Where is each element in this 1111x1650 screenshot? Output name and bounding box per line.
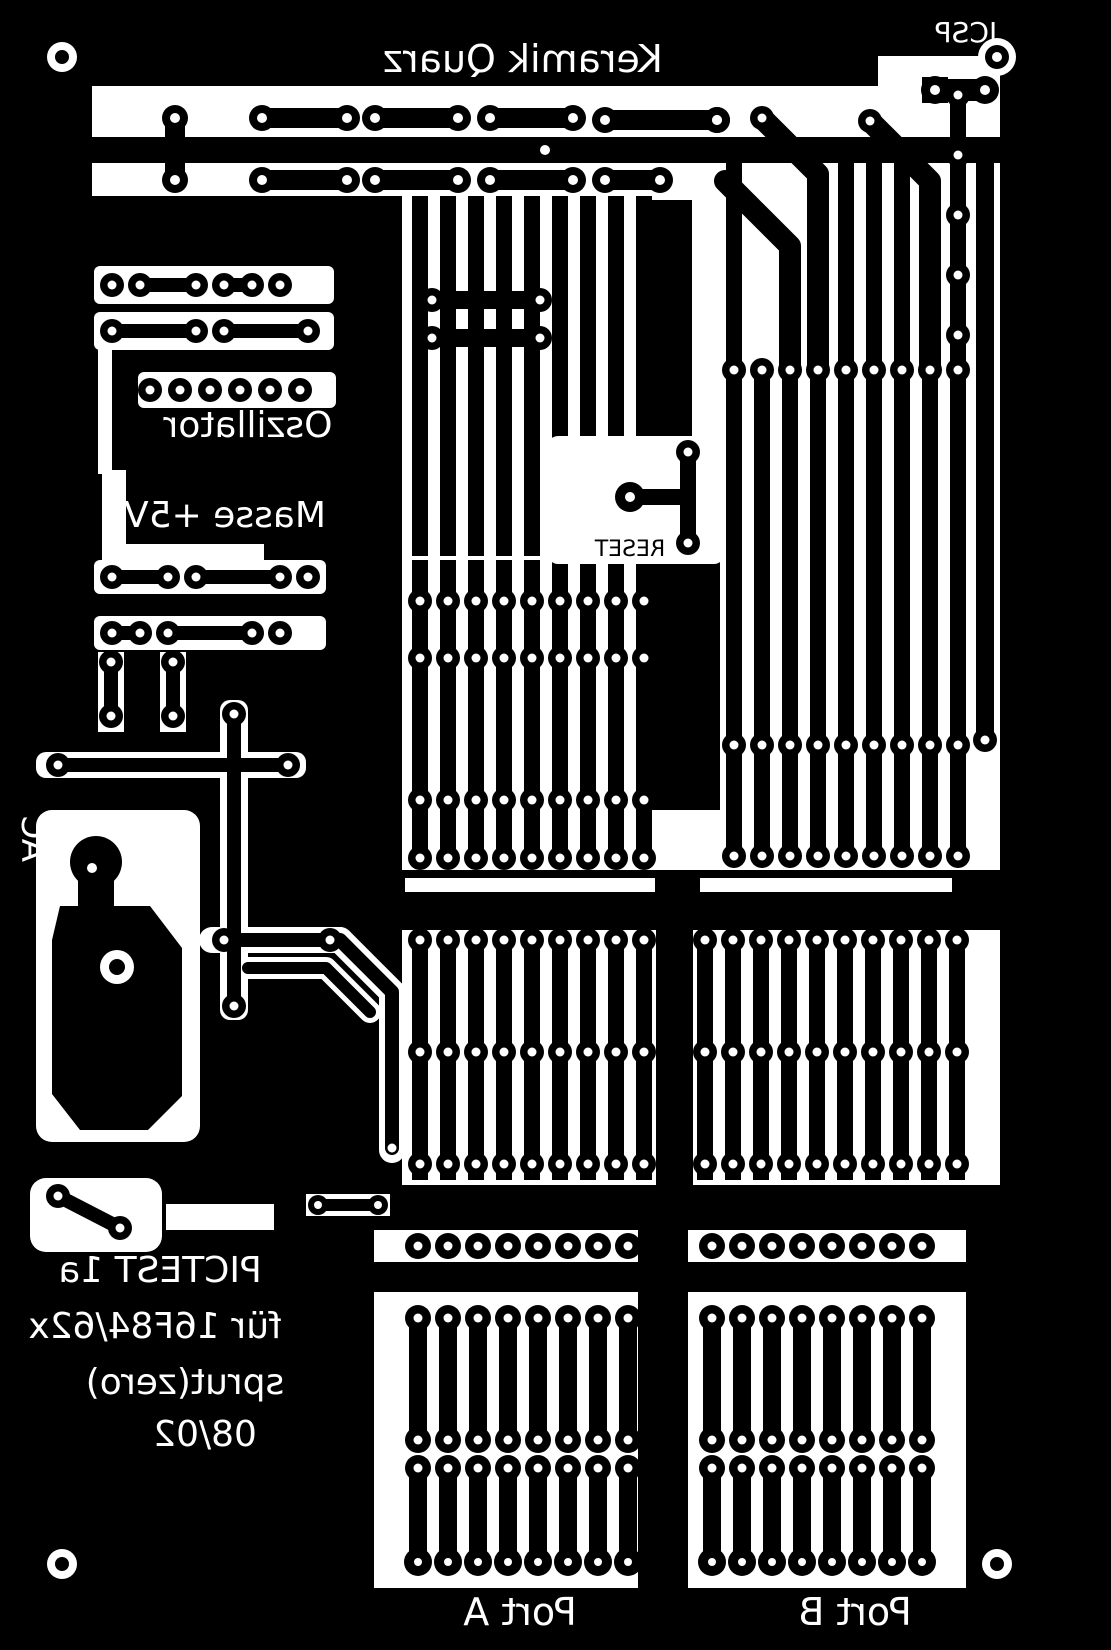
drill-hole <box>954 151 963 160</box>
drill-hole <box>712 115 722 125</box>
drill-hole <box>828 1314 837 1323</box>
drill-hole <box>584 1160 593 1169</box>
drill-hole <box>729 1048 738 1057</box>
drill-hole <box>918 1558 926 1566</box>
copper-pour <box>648 560 720 810</box>
drill-hole <box>841 1160 850 1169</box>
drill-hole <box>594 1558 602 1566</box>
drill-hole <box>444 854 453 863</box>
label-keramik-quarz: Keramik Quarz <box>383 37 663 81</box>
drill-hole <box>444 597 453 606</box>
drill-hole <box>164 573 173 582</box>
port-trace <box>589 1468 607 1562</box>
socket-trace <box>838 365 854 860</box>
label-ac: AC <box>13 816 53 862</box>
copper-pour <box>374 1262 638 1292</box>
drill-hole <box>500 654 509 663</box>
port-trace <box>619 1468 637 1562</box>
label-project-line2: für 16F84/62x <box>28 1306 281 1347</box>
drill-hole <box>918 1464 927 1473</box>
drill-hole <box>785 1048 794 1057</box>
drill-hole <box>116 1224 125 1233</box>
port-trace <box>619 1318 637 1440</box>
drill-hole <box>926 852 935 861</box>
drill-hole <box>556 936 565 945</box>
drill-hole <box>528 936 537 945</box>
drill-hole <box>858 1436 867 1445</box>
drill-hole <box>107 712 116 721</box>
drill-hole <box>564 1464 573 1473</box>
drill-hole <box>640 597 649 606</box>
drill-hole <box>708 1314 717 1323</box>
drill-hole <box>164 629 173 638</box>
drill-hole <box>564 1314 573 1323</box>
drill-hole <box>954 211 963 220</box>
drill-hole <box>786 741 795 750</box>
drill-hole <box>898 366 907 375</box>
drill-hole <box>472 1160 481 1169</box>
drill-hole <box>485 175 495 185</box>
drill-hole <box>314 1201 322 1209</box>
drill-hole <box>472 936 481 945</box>
drill-hole <box>414 1558 422 1566</box>
drill-hole <box>757 936 766 945</box>
drill-hole <box>869 1048 878 1057</box>
socket-trace <box>810 365 826 860</box>
drill-hole <box>276 629 285 638</box>
drill-hole <box>342 175 352 185</box>
drill-hole <box>192 573 201 582</box>
drill-hole <box>528 854 537 863</box>
drill-hole <box>370 175 380 185</box>
drill-hole <box>500 1048 509 1057</box>
socket-trace <box>496 196 512 556</box>
port-trace <box>793 1468 811 1562</box>
drill-hole <box>888 1464 897 1473</box>
drill-hole <box>220 327 229 336</box>
drill-hole <box>813 936 822 945</box>
reset-text: RESET <box>594 537 665 562</box>
drill-hole <box>192 281 201 290</box>
socket-trace <box>894 365 910 860</box>
drill-hole <box>230 1002 239 1011</box>
clearance-region <box>102 544 264 562</box>
drill-hole <box>600 115 610 125</box>
drill-hole <box>136 629 145 638</box>
port-b-text: Port B <box>798 1590 911 1634</box>
drill-hole <box>888 1436 897 1445</box>
port-trace <box>763 1468 781 1562</box>
socket-trace <box>440 196 456 556</box>
port-trace <box>499 1468 517 1562</box>
drill-hole <box>870 741 879 750</box>
drill-hole <box>612 1048 621 1057</box>
drill-hole <box>474 1436 483 1445</box>
drill-hole <box>708 1242 717 1251</box>
drill-hole <box>684 448 693 457</box>
drill-hole <box>594 1464 603 1473</box>
drill-hole <box>556 654 565 663</box>
drill-hole <box>798 1314 807 1323</box>
drill-hole <box>954 331 963 340</box>
drill-hole <box>500 936 509 945</box>
drill-hole <box>108 573 117 582</box>
drill-hole <box>954 852 963 861</box>
drill-hole <box>624 1314 633 1323</box>
drill-hole <box>842 852 851 861</box>
drill-hole <box>485 113 495 123</box>
drill-hole <box>444 1242 453 1251</box>
drill-hole <box>594 1436 603 1445</box>
drill-hole <box>326 936 335 945</box>
drill-hole <box>828 1464 837 1473</box>
drill-hole <box>474 1242 483 1251</box>
drill-hole <box>444 1160 453 1169</box>
drill-hole <box>416 1160 425 1169</box>
drill-hole <box>684 539 693 548</box>
drill-hole <box>925 1160 934 1169</box>
port-trace <box>853 1468 871 1562</box>
pcb-board: Keramik Quarz ICSP Oszillator Masse +5V … <box>0 0 1111 1650</box>
ac-text: AC <box>13 816 53 862</box>
drill-hole <box>584 597 593 606</box>
drill-hole <box>625 492 635 502</box>
drill-hole <box>738 1314 747 1323</box>
drill-hole <box>768 1464 777 1473</box>
drill-hole <box>370 113 380 123</box>
drill-hole <box>841 1048 850 1057</box>
label-icsp: ICSP <box>935 16 997 49</box>
drill-hole <box>136 281 145 290</box>
drill-hole <box>612 854 621 863</box>
label-project-line1: PICTEST 1a <box>58 1250 261 1291</box>
drill-hole <box>640 654 649 663</box>
drill-hole <box>472 597 481 606</box>
mounting-hole-center <box>55 50 69 64</box>
drill-hole <box>474 1464 483 1473</box>
drill-hole <box>758 852 767 861</box>
port-trace <box>559 1318 577 1440</box>
drill-hole <box>504 1558 512 1566</box>
drill-hole <box>701 1160 710 1169</box>
label-reset: RESET <box>594 537 665 562</box>
drill-hole <box>276 573 285 582</box>
port-trace <box>703 1318 721 1440</box>
drill-hole <box>640 1160 649 1169</box>
drill-hole <box>474 1558 482 1566</box>
drill-hole <box>444 796 453 805</box>
drill-hole <box>758 741 767 750</box>
pcb-layout-screenshot: Keramik Quarz ICSP Oszillator Masse +5V … <box>0 0 1111 1650</box>
socket-trace <box>866 365 882 860</box>
drill-hole <box>842 741 851 750</box>
drill-hole <box>768 1436 777 1445</box>
label-port-b: Port B <box>798 1590 911 1634</box>
port-trace <box>409 1468 427 1562</box>
drill-hole <box>841 936 850 945</box>
drill-hole <box>176 386 185 395</box>
drill-hole <box>170 113 180 123</box>
mounting-hole-center <box>55 1557 69 1571</box>
drill-hole <box>474 1314 483 1323</box>
socket-trace <box>950 365 966 860</box>
drill-hole <box>814 366 823 375</box>
drill-hole <box>798 1558 806 1566</box>
drill-hole <box>108 327 117 336</box>
drill-hole <box>798 1242 807 1251</box>
drill-hole <box>444 1464 453 1473</box>
drill-hole <box>640 854 649 863</box>
port-trace <box>439 1468 457 1562</box>
drill-hole <box>738 1436 747 1445</box>
drill-hole <box>858 1464 867 1473</box>
drill-hole <box>416 936 425 945</box>
drill-hole <box>584 796 593 805</box>
drill-hole <box>897 1048 906 1057</box>
drill-hole <box>534 1464 543 1473</box>
drill-hole <box>738 1242 747 1251</box>
drill-hole <box>612 1160 621 1169</box>
drill-hole <box>414 1464 423 1473</box>
drill-hole <box>414 1436 423 1445</box>
drill-hole <box>504 1436 513 1445</box>
port-trace <box>883 1318 901 1440</box>
mid-channel <box>700 878 952 892</box>
drill-hole <box>257 113 267 123</box>
drill-hole <box>888 1314 897 1323</box>
ac-connector-body <box>52 906 182 1130</box>
drill-hole <box>564 1558 572 1566</box>
drill-hole <box>858 1314 867 1323</box>
drill-hole <box>953 936 962 945</box>
drill-hole <box>757 1160 766 1169</box>
drill-hole <box>858 1558 866 1566</box>
port-trace <box>733 1318 751 1440</box>
drill-hole <box>556 796 565 805</box>
drill-hole <box>472 1048 481 1057</box>
drill-hole <box>758 114 767 123</box>
project-line4-text: 08/02 <box>153 1414 257 1455</box>
drill-hole <box>600 175 610 185</box>
drill-hole <box>813 1048 822 1057</box>
drill-hole <box>768 1314 777 1323</box>
drill-hole <box>798 1464 807 1473</box>
drill-hole <box>584 936 593 945</box>
drill-hole <box>708 1558 716 1566</box>
port-trace <box>793 1318 811 1440</box>
drill-hole <box>701 936 710 945</box>
port-trace <box>559 1468 577 1562</box>
drill-hole <box>428 296 437 305</box>
drill-hole <box>640 1048 649 1057</box>
drill-hole <box>786 366 795 375</box>
drill-hole <box>304 573 313 582</box>
drill-hole <box>869 1160 878 1169</box>
drill-hole <box>594 1242 603 1251</box>
drill-hole <box>640 936 649 945</box>
drill-hole <box>504 1242 513 1251</box>
drill-hole <box>540 145 550 155</box>
drill-hole <box>897 1160 906 1169</box>
drill-hole <box>786 852 795 861</box>
drill-hole <box>472 854 481 863</box>
drill-hole <box>953 1048 962 1057</box>
project-line2-text: für 16F84/62x <box>28 1306 281 1347</box>
drill-hole <box>528 1160 537 1169</box>
drill-hole <box>624 1436 633 1445</box>
drill-hole <box>930 85 940 95</box>
drill-hole <box>612 597 621 606</box>
label-oszillator: Oszillator <box>163 405 332 446</box>
drill-hole <box>828 1242 837 1251</box>
drill-hole <box>556 1048 565 1057</box>
drill-hole <box>528 597 537 606</box>
drill-hole <box>444 1436 453 1445</box>
drill-hole <box>730 366 739 375</box>
drill-hole <box>248 281 257 290</box>
port-trace <box>913 1468 931 1562</box>
drill-hole <box>870 366 879 375</box>
drill-hole <box>248 629 257 638</box>
drill-hole <box>729 1160 738 1169</box>
drill-hole <box>230 710 239 719</box>
drill-hole <box>888 1242 897 1251</box>
drill-hole <box>472 796 481 805</box>
label-masse-5v: Masse +5V <box>124 495 326 536</box>
drill-hole <box>472 654 481 663</box>
drill-hole <box>866 117 875 126</box>
drill-hole <box>414 1242 423 1251</box>
drill-hole <box>584 654 593 663</box>
drill-hole <box>828 1436 837 1445</box>
drill-hole <box>842 366 851 375</box>
drill-hole <box>640 796 649 805</box>
drill-hole <box>500 796 509 805</box>
drill-hole <box>858 1242 867 1251</box>
port-trace <box>469 1318 487 1440</box>
drill-hole <box>416 1048 425 1057</box>
drill-hole <box>257 175 267 185</box>
drill-hole <box>568 113 578 123</box>
drill-hole <box>304 327 313 336</box>
drill-hole <box>206 386 215 395</box>
drill-hole <box>624 1464 633 1473</box>
drill-hole <box>898 852 907 861</box>
port-trace <box>913 1318 931 1440</box>
drill-hole <box>534 1314 543 1323</box>
socket-trace <box>922 365 938 860</box>
drill-hole <box>534 1242 543 1251</box>
drill-hole <box>624 1558 632 1566</box>
drill-hole <box>192 327 201 336</box>
drill-hole <box>453 113 463 123</box>
drill-hole <box>220 281 229 290</box>
drill-hole <box>500 1160 509 1169</box>
drill-hole <box>528 1048 537 1057</box>
drill-hole <box>416 854 425 863</box>
port-trace <box>823 1468 841 1562</box>
port-trace <box>703 1468 721 1562</box>
drill-hole <box>428 334 437 343</box>
socket-trace <box>468 196 484 556</box>
drill-hole <box>918 1242 927 1251</box>
drill-hole <box>388 1144 397 1153</box>
drill-hole <box>342 113 352 123</box>
drill-hole <box>564 1242 573 1251</box>
drill-hole <box>798 1436 807 1445</box>
drill-hole <box>146 386 155 395</box>
drill-hole <box>556 1160 565 1169</box>
copper-pour <box>656 930 693 1186</box>
drill-hole <box>108 281 117 290</box>
clearance-region <box>98 348 112 474</box>
drill-hole <box>655 175 665 185</box>
drill-hole <box>444 1558 452 1566</box>
drill-hole <box>416 654 425 663</box>
drill-hole <box>926 741 935 750</box>
label-project-line4: 08/02 <box>153 1414 257 1455</box>
drill-hole <box>981 736 990 745</box>
drill-hole <box>266 386 275 395</box>
drill-hole <box>169 658 178 667</box>
drill-hole <box>568 175 578 185</box>
drill-hole <box>504 1314 513 1323</box>
drill-hole <box>169 712 178 721</box>
drill-hole <box>504 1464 513 1473</box>
drill-hole <box>584 854 593 863</box>
drill-hole <box>758 366 767 375</box>
drill-hole <box>612 796 621 805</box>
drill-hole <box>444 936 453 945</box>
socket-trace <box>754 365 770 860</box>
project-line1-text: PICTEST 1a <box>58 1250 261 1291</box>
drill-hole <box>953 1160 962 1169</box>
drill-hole <box>785 1160 794 1169</box>
drill-hole <box>87 863 97 873</box>
drill-hole <box>730 741 739 750</box>
drill-hole <box>564 1436 573 1445</box>
masse-5v-text: Masse +5V <box>124 495 326 536</box>
drill-hole <box>926 366 935 375</box>
drill-hole <box>785 936 794 945</box>
drill-hole <box>738 1464 747 1473</box>
drill-hole <box>220 936 229 945</box>
drill-hole <box>534 1436 543 1445</box>
drill-hole <box>416 597 425 606</box>
label-project-line3: sprut(zero) <box>86 1362 285 1403</box>
drill-hole <box>54 761 63 770</box>
drill-hole <box>708 1464 717 1473</box>
drill-hole <box>757 1048 766 1057</box>
drill-hole <box>918 1314 927 1323</box>
mounting-hole-center <box>990 1557 1004 1571</box>
drill-hole <box>925 936 934 945</box>
drill-hole <box>536 296 545 305</box>
port-trace <box>589 1318 607 1440</box>
drill-hole <box>814 852 823 861</box>
keramik-quarz-text: Keramik Quarz <box>383 37 663 81</box>
drill-hole <box>296 386 305 395</box>
drill-hole <box>284 761 293 770</box>
drill-hole <box>888 1558 896 1566</box>
port-trace <box>823 1318 841 1440</box>
drill-hole <box>897 936 906 945</box>
drill-hole <box>556 597 565 606</box>
mounting-hole-drill <box>992 52 1002 62</box>
drill-hole <box>536 334 545 343</box>
drill-hole <box>870 852 879 861</box>
drill-hole <box>414 1314 423 1323</box>
